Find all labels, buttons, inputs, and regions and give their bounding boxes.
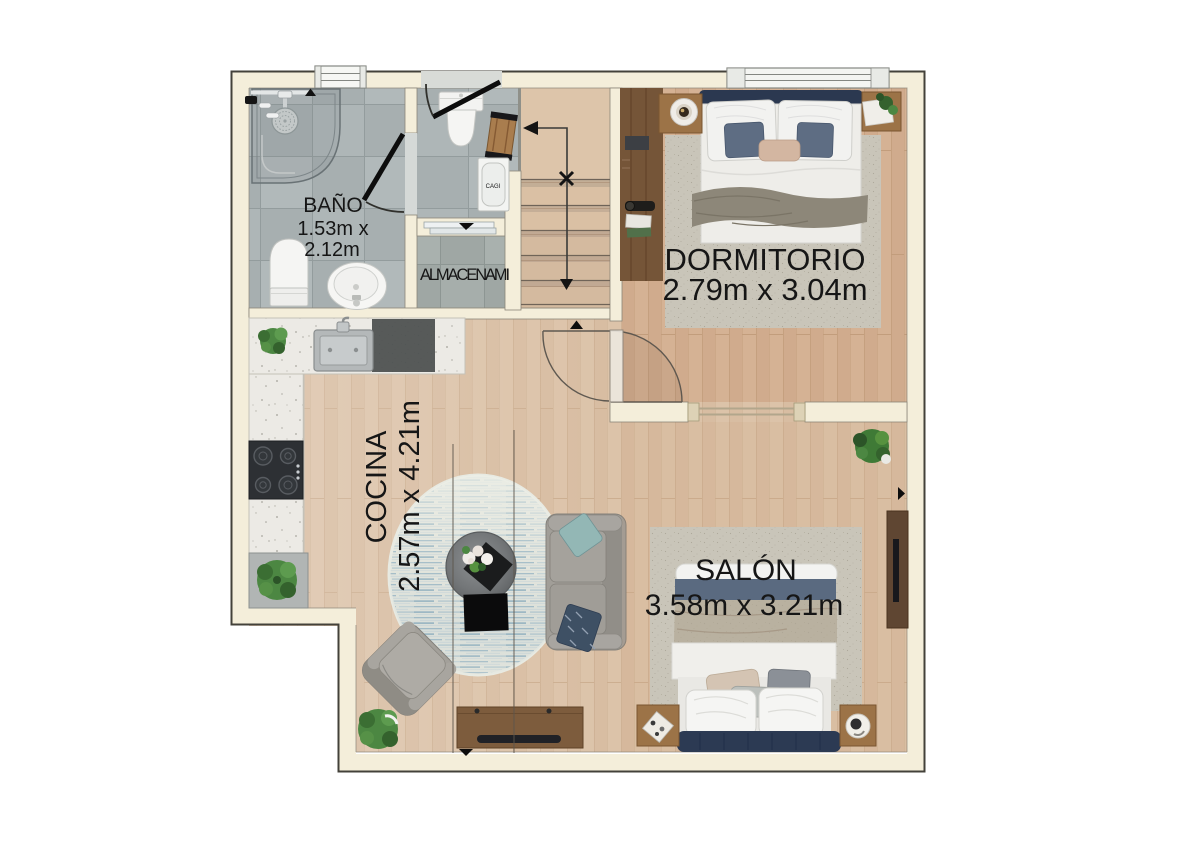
svg-text:3.58m x 3.21m: 3.58m x 3.21m (645, 589, 843, 622)
svg-text:COCINA: COCINA (361, 430, 393, 543)
svg-text:CAGI: CAGI (486, 184, 501, 190)
svg-text:ALMACENAMI: ALMACENAMI (420, 266, 510, 284)
svg-text:2.12m: 2.12m (304, 239, 360, 261)
svg-text:BAÑO: BAÑO (303, 193, 363, 217)
svg-text:2.57m x 4.21m: 2.57m x 4.21m (394, 400, 426, 592)
svg-text:2.79m x 3.04m: 2.79m x 3.04m (662, 272, 867, 307)
svg-text:1.53m x: 1.53m x (297, 218, 368, 240)
svg-text:SALÓN: SALÓN (695, 554, 797, 587)
